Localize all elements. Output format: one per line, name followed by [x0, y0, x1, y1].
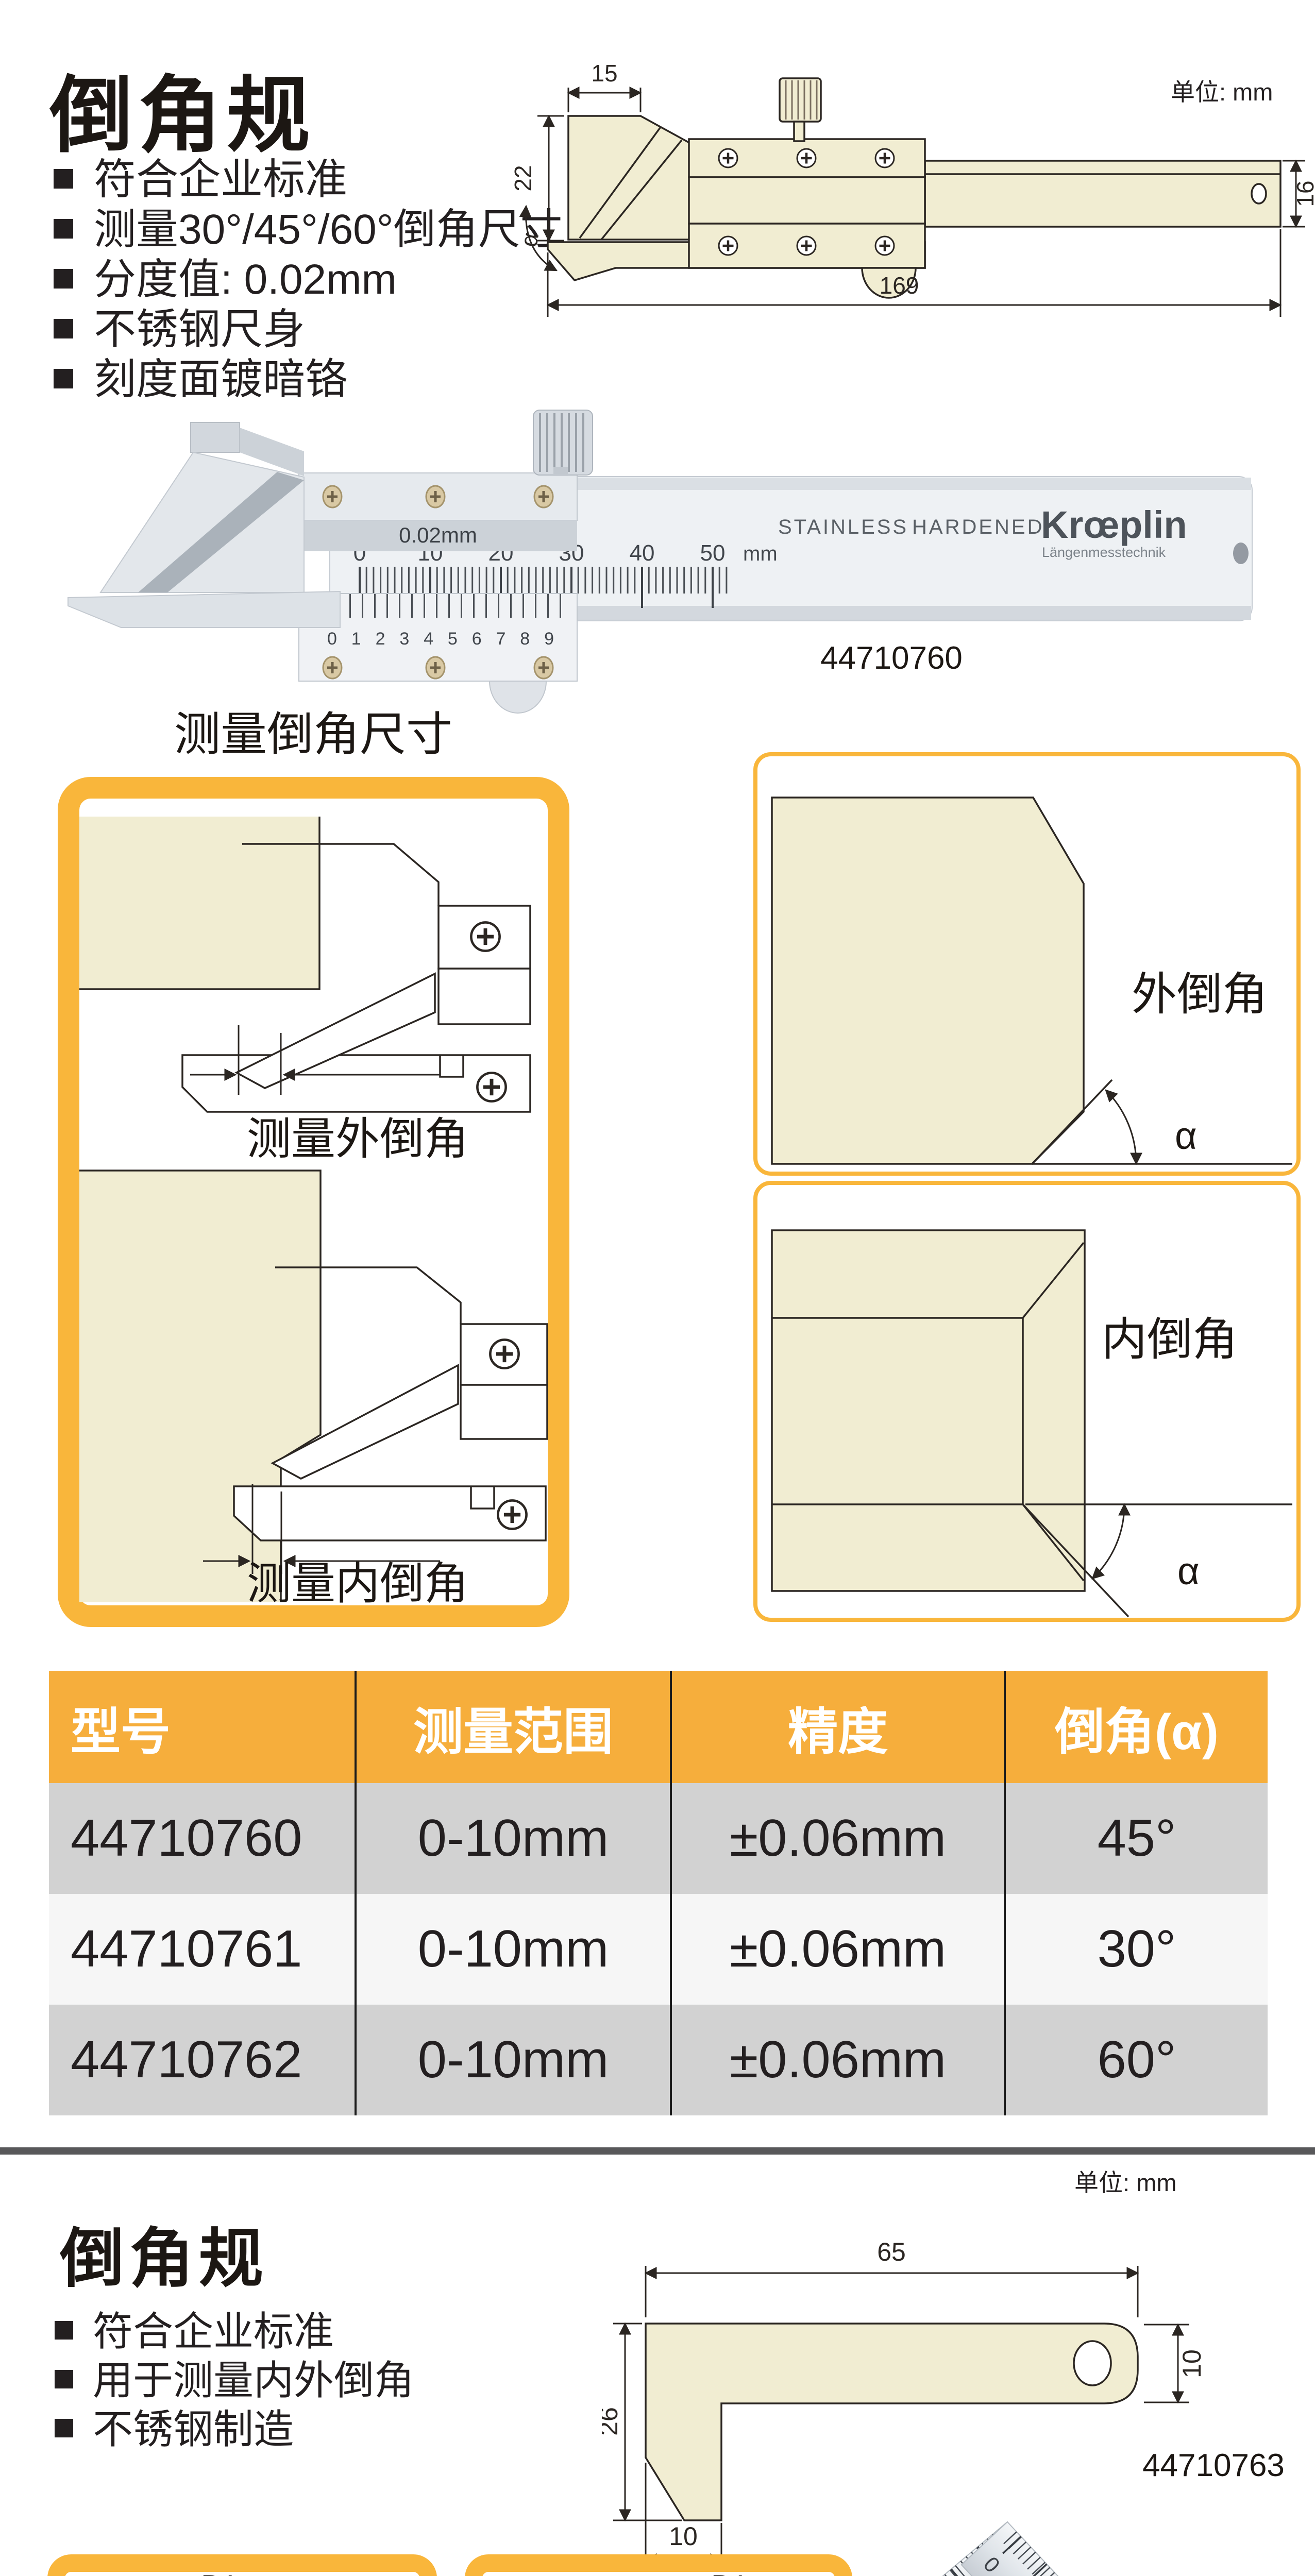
workpiece [772, 798, 1084, 1164]
col-header: 倒角(α) [1006, 1671, 1268, 1783]
d1-label: D1 [201, 2572, 238, 2576]
d1-d2-internal-diagram: D1 D2 [482, 2572, 835, 2576]
d1-d2-internal-box: D1 D2 [465, 2554, 852, 2576]
col-header: 测量范围 [357, 1671, 672, 1783]
bullet-square-icon [54, 269, 73, 289]
brand-logo: Krœplin [1041, 503, 1187, 546]
catalog-page: 倒角规 符合企业标准 测量30°/45°/60°倒角尺寸 分度值: 0.02mm… [0, 0, 1315, 2576]
list-item-label: 符合企业标准 [94, 155, 347, 205]
col-header: 精度 [672, 1671, 1006, 1783]
dim-26: 26 [602, 2407, 623, 2436]
dim-16: 16 [1292, 180, 1315, 207]
table-cell: 30° [1006, 1894, 1268, 2005]
list-item: 符合企业标准 [55, 2307, 596, 2356]
brand-subtitle: Längenmesstechnik [1042, 545, 1166, 560]
resolution-label: 0.02mm [399, 523, 477, 547]
dim-alpha: α [515, 231, 544, 249]
technical-drawing-caliper: 15 22 α 169 16 [508, 10, 1315, 332]
list-item: 用于测量内外倒角 [55, 2356, 596, 2405]
spec-table: 型号 测量范围 精度 倒角(α) 44710760 0-10mm ±0.06mm… [49, 1671, 1268, 2115]
col-header: 型号 [49, 1671, 357, 1783]
angle-alpha: α [1177, 1550, 1200, 1592]
d1-d2-external-box: D1 D2 [47, 2554, 437, 2576]
angle-alpha: α [1175, 1114, 1197, 1157]
beam [925, 161, 1280, 227]
bullet-square-icon [55, 2370, 73, 2388]
d1-d2-external-diagram: D1 D2 [65, 2572, 419, 2576]
bullet-square-icon [54, 369, 73, 388]
bullet-square-icon [54, 169, 73, 189]
dim-22: 22 [510, 165, 536, 191]
section-title: 倒角规 [60, 2206, 268, 2299]
d1-label: D1 [711, 2572, 748, 2576]
measuring-diagram-box: 测量外倒角 测量内倒角 [58, 777, 569, 1627]
gauge-blade-right: 0 5 10 15 20 25 30 Krœplin Längenmesstec… [960, 2522, 1232, 2576]
stamp-hardened: HARDENED [912, 516, 1044, 538]
list-item-label: 符合企业标准 [93, 2307, 334, 2356]
page-title: 倒角规 [49, 47, 315, 168]
table-cell: 60° [1006, 2005, 1268, 2115]
outer-chamfer-label: 外倒角 [1132, 969, 1268, 1020]
dim-15: 15 [591, 60, 617, 87]
table-cell: 44710762 [49, 2005, 357, 2115]
chamfer-measuring-diagrams: 测量外倒角 测量内倒角 [79, 799, 548, 1605]
dim-10-right: 10 [1177, 2349, 1206, 2378]
feature-list: 符合企业标准 用于测量内外倒角 不锈钢制造 [55, 2307, 596, 2454]
workpiece-external [79, 817, 319, 989]
dim-169: 169 [880, 272, 919, 299]
inner-caption: 测量内倒角 [247, 1559, 468, 1605]
product-photo-caliper: 0 10 20 30 40 50 mm STAINLESS HARDENED K… [36, 389, 1283, 724]
bullet-square-icon [55, 2419, 73, 2437]
diagram-caption: 测量倒角尺寸 [128, 697, 499, 764]
lower-jaw-arm [68, 591, 340, 628]
fixed-jaw-head [191, 422, 240, 452]
outer-chamfer-diagram: α 外倒角 [757, 756, 1296, 1172]
list-item-label: 分度值: 0.02mm [94, 255, 397, 304]
lanyard-hole [1233, 543, 1249, 564]
list-item-label: 用于测量内外倒角 [93, 2356, 414, 2405]
table-cell: 44710761 [49, 1894, 357, 2005]
stamp-stainless: STAINLESS [778, 516, 908, 538]
table-cell: ±0.06mm [672, 1894, 1006, 2005]
dim-10-bottom: 10 [669, 2522, 698, 2551]
lanyard-hole [1252, 184, 1266, 204]
product-code: 44710760 [806, 640, 976, 676]
fixed-jaw [568, 116, 703, 240]
table-cell: 0-10mm [357, 2005, 672, 2115]
list-item: 不锈钢制造 [55, 2405, 596, 2454]
fixed-jaw [100, 452, 304, 592]
inner-chamfer-box: α 内倒角 [753, 1181, 1301, 1622]
bullet-square-icon [54, 219, 73, 239]
unit-note: 单位: mm [1074, 2163, 1176, 2198]
dim-65: 65 [877, 2238, 906, 2266]
scale-unit: mm [743, 543, 778, 565]
table-cell: ±0.06mm [672, 2005, 1006, 2115]
list-item-label: 测量30°/45°/60°倒角尺寸 [94, 205, 563, 255]
bullet-square-icon [55, 2321, 73, 2340]
inner-chamfer-label: 内倒角 [1102, 1314, 1238, 1365]
table-cell: 44710760 [49, 1783, 357, 1894]
svg-text:50: 50 [700, 540, 726, 566]
lanyard-hole [1074, 2341, 1111, 2385]
outer-chamfer-box: α 外倒角 [753, 752, 1301, 1176]
svg-text:40: 40 [630, 540, 655, 566]
table-cell: 0-10mm [357, 1783, 672, 1894]
table-cell: 45° [1006, 1783, 1268, 1894]
list-item-label: 不锈钢尺身 [94, 304, 305, 354]
table-cell: ±0.06mm [672, 1783, 1006, 1894]
section-divider [0, 2147, 1315, 2155]
list-item-label: 不锈钢制造 [93, 2405, 294, 2454]
outer-caption: 测量外倒角 [247, 1114, 468, 1164]
inner-chamfer-diagram: α 内倒角 [757, 1185, 1296, 1618]
table-cell: 0-10mm [357, 1894, 672, 2005]
bullet-square-icon [54, 319, 73, 338]
workpiece [772, 1230, 1085, 1591]
